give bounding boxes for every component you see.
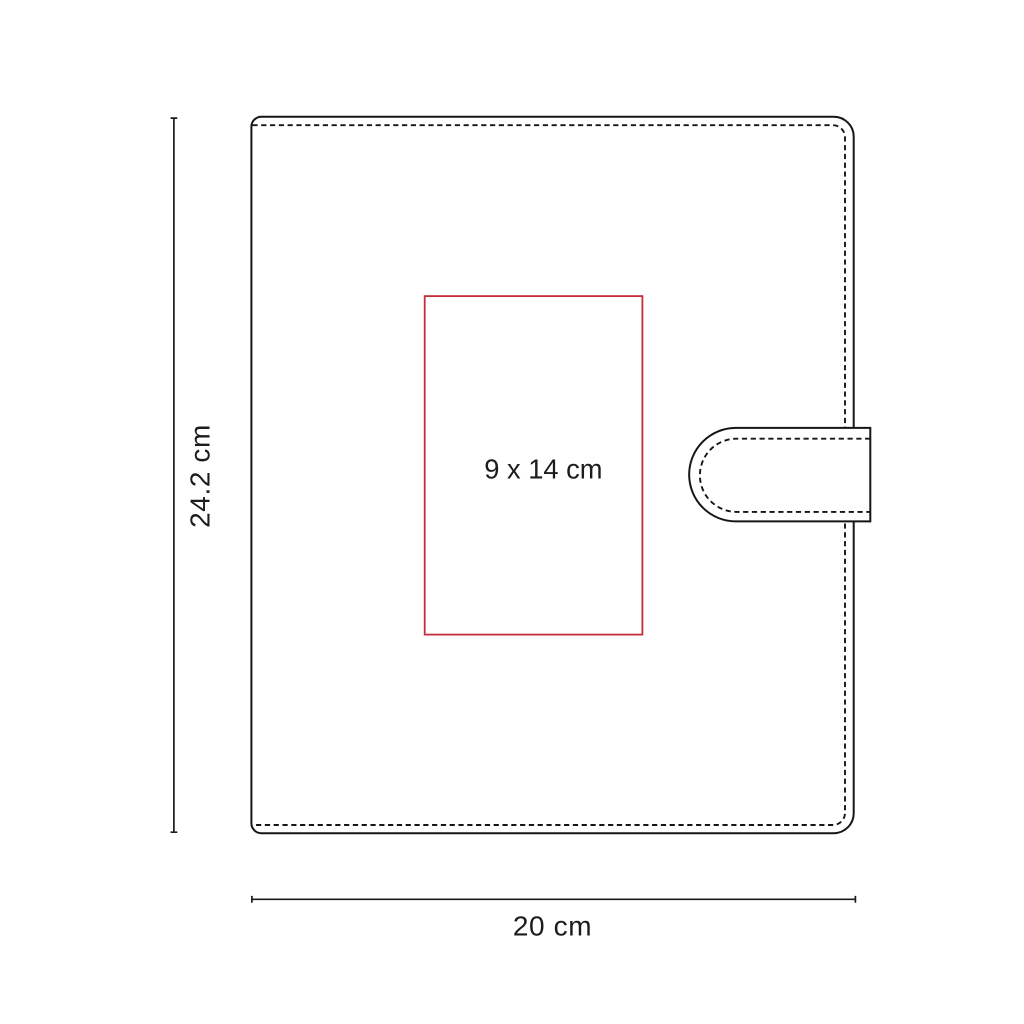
svg-text:20 cm: 20 cm [513, 911, 592, 942]
svg-text:24.2 cm: 24.2 cm [185, 424, 216, 528]
svg-text:9 x 14 cm: 9 x 14 cm [484, 453, 602, 484]
